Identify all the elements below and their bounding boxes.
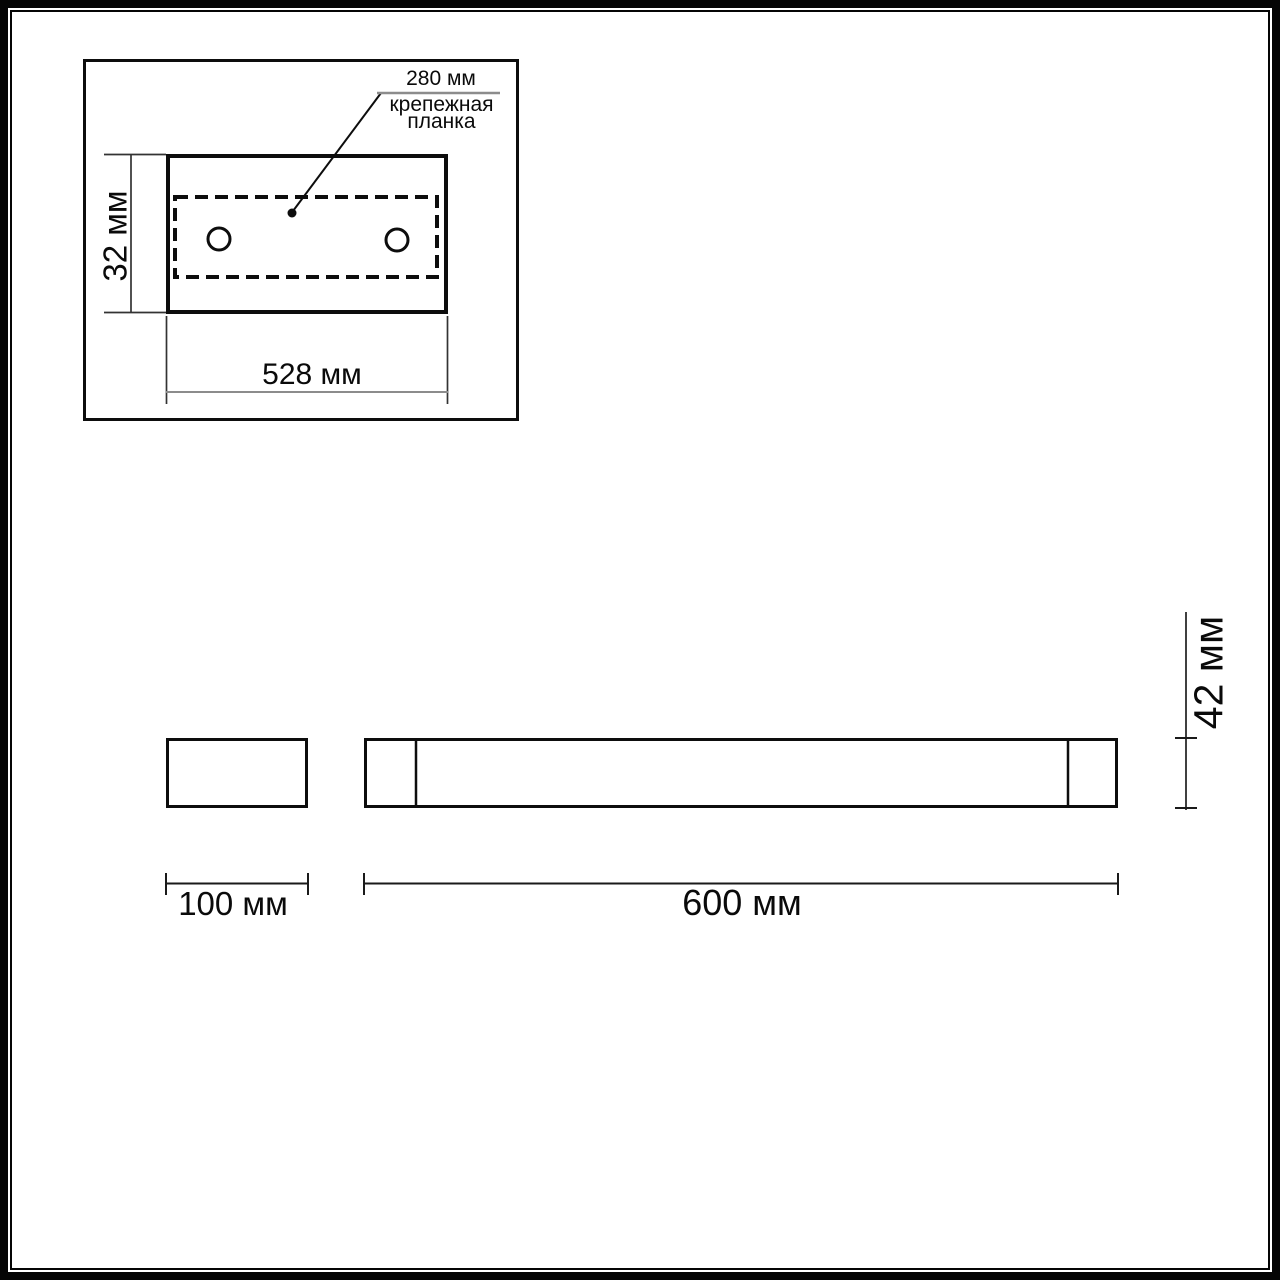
mounting-hole-left (208, 228, 230, 250)
plate-width-dimension-label: 528 мм (212, 361, 412, 389)
dimension-drawing-canvas: 280 мм крепежная планка 528 мм 32 мм 100… (0, 0, 1280, 1280)
body-height-dimension-label: 42 мм (1189, 603, 1230, 743)
mounting-hole-right (386, 229, 408, 251)
body-width-dimension-label: 600 мм (642, 886, 842, 920)
plate-height-dimension-label: 32 мм (99, 166, 133, 307)
callout-leader-line (293, 93, 381, 211)
mounting-plate-label: крепежная планка (376, 97, 507, 130)
side-depth-dimension-label: 100 мм (133, 888, 333, 920)
side-view-outline (168, 740, 307, 807)
drawing-linework (0, 0, 1280, 1280)
callout-dimension-label: 280 мм (341, 69, 541, 89)
callout-leader-dot (288, 209, 297, 218)
mounting-plate-dashed-outline (175, 197, 437, 277)
front-view-outline (366, 740, 1117, 807)
